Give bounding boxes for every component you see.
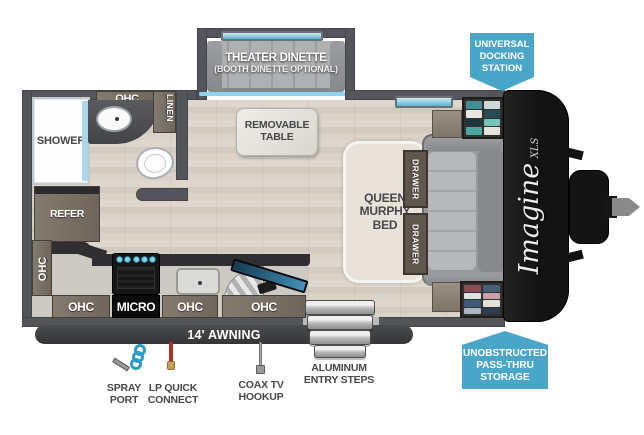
docking-badge-line-1: UNIVERSAL — [470, 39, 534, 51]
slideout-led-strip — [199, 92, 349, 96]
cabinet-ohc-2: OHC — [162, 295, 218, 318]
wardrobe-top — [462, 97, 504, 139]
stove-knobs — [113, 254, 159, 265]
shower-stall: SHOWER — [32, 97, 90, 185]
sofa-backrest — [478, 150, 504, 272]
steps-label-1: ALUMINUM — [298, 363, 380, 375]
lp-connect-label: LP QUICK CONNECT — [141, 383, 205, 407]
theater-dinette-title: THEATER DINETTE — [196, 52, 356, 64]
drawer-bottom-label: DRAWER — [411, 224, 421, 265]
slideout-window — [221, 31, 323, 41]
shower-label: SHOWER — [34, 135, 88, 147]
stove-cooktop — [112, 253, 160, 295]
cabinet-ohc-3: OHC — [222, 295, 306, 318]
kitchen-faucet — [198, 281, 202, 285]
storage-badge-line-2: PASS-THRU — [462, 360, 548, 372]
drawer-top-label: DRAWER — [411, 159, 421, 200]
drawer-top: DRAWER — [403, 150, 428, 208]
cabinet-ohc-side: OHC — [32, 240, 52, 296]
vanity-faucet — [115, 117, 119, 121]
linen-cabinet: LINEN — [153, 91, 176, 133]
table-label-2: TABLE — [260, 132, 293, 144]
coax-label-1: COAX TV — [231, 380, 291, 392]
front-window — [395, 96, 453, 108]
steps-label-2: ENTRY STEPS — [298, 375, 380, 387]
cabinet-micro: MICRO — [112, 295, 160, 318]
stove-grate — [117, 267, 155, 289]
docking-station-badge: UNIVERSAL DOCKING STATION — [470, 33, 534, 91]
coax-label: COAX TV HOOKUP — [231, 380, 291, 404]
lp-label-2: CONNECT — [141, 395, 205, 407]
refer-label: REFER — [35, 187, 99, 241]
entry-step-1 — [305, 300, 375, 315]
brand-logo: Imagine XLS — [514, 131, 558, 281]
linen-label: LINEN — [154, 94, 175, 122]
awning-label: 14' AWNING — [187, 328, 260, 342]
murphy-sofa — [422, 134, 506, 286]
refrigerator-top-edge — [35, 187, 99, 194]
entry-step-3 — [309, 330, 371, 345]
vanity-sink — [96, 106, 132, 132]
drawer-bottom: DRAWER — [403, 213, 428, 275]
wardrobe-bottom-clothes — [462, 283, 502, 316]
lp-connect-line — [169, 342, 173, 362]
booth-dinette-subtitle: (BOOTH DINETTE OPTIONAL) — [196, 64, 356, 74]
nightstand-bottom — [432, 282, 462, 312]
entry-step-4 — [314, 345, 366, 358]
bathroom-wall-door — [136, 188, 188, 201]
storage-badge-line-1: UNOBSTRUCTED — [462, 348, 548, 360]
brand-series: XLS — [530, 138, 541, 159]
spray-port-hose — [126, 344, 152, 370]
removable-table: REMOVABLE TABLE — [236, 108, 318, 156]
nightstand-top — [432, 110, 462, 138]
wardrobe-top-clothes — [464, 99, 502, 137]
sofa-seat — [428, 152, 476, 270]
sofa-armrest-top — [426, 138, 502, 151]
wardrobe-bottom — [460, 281, 504, 318]
cabinet-ohc-1: OHC — [52, 295, 110, 318]
bed-label-1: QUEEN — [364, 192, 406, 205]
bathroom-wall-vertical — [176, 90, 188, 180]
entry-steps-label: ALUMINUM ENTRY STEPS — [298, 363, 380, 387]
coax-label-2: HOOKUP — [231, 392, 291, 404]
bed-label-3: BED — [373, 219, 398, 232]
refrigerator: REFER — [34, 186, 100, 242]
coax-line — [259, 342, 262, 367]
lp-label-1: LP QUICK — [141, 383, 205, 395]
coax-connector — [256, 365, 265, 374]
docking-badge-line-3: STATION — [470, 63, 534, 75]
propane-cover — [569, 170, 609, 244]
brand-name: Imagine — [514, 163, 545, 275]
docking-badge-line-2: DOCKING — [470, 51, 534, 63]
kitchen-sink — [176, 268, 220, 295]
hitch-coupler — [612, 198, 640, 216]
floorplan-canvas: THEATER DINETTE (BOOTH DINETTE OPTIONAL)… — [0, 0, 644, 435]
wall-left — [22, 90, 32, 327]
storage-badge-line-3: STORAGE — [462, 372, 548, 384]
pass-thru-storage-badge: UNOBSTRUCTED PASS-THRU STORAGE — [462, 331, 548, 389]
toilet-seat — [143, 152, 168, 175]
lp-connect-fitting — [167, 361, 175, 370]
slideout-label: THEATER DINETTE (BOOTH DINETTE OPTIONAL) — [196, 52, 356, 74]
ohc-side-label: OHC — [37, 245, 49, 293]
entry-step-2 — [307, 315, 373, 330]
